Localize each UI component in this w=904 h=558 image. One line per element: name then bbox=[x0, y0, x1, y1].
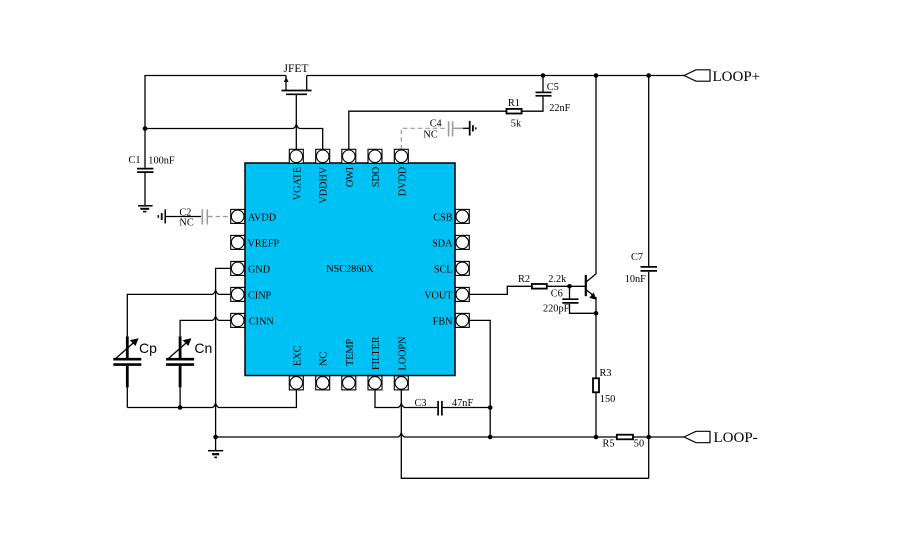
svg-text:R3: R3 bbox=[600, 368, 612, 379]
svg-text:CSB: CSB bbox=[433, 213, 452, 224]
svg-text:NC: NC bbox=[319, 352, 330, 366]
svg-text:C7: C7 bbox=[631, 252, 643, 263]
svg-text:C3: C3 bbox=[415, 398, 427, 409]
svg-text:SCL: SCL bbox=[434, 264, 453, 275]
svg-text:NC: NC bbox=[179, 218, 193, 229]
svg-text:NSC2860X: NSC2860X bbox=[326, 264, 374, 275]
svg-text:OWI: OWI bbox=[345, 166, 356, 187]
svg-text:C4: C4 bbox=[430, 119, 442, 130]
svg-text:5k: 5k bbox=[511, 119, 522, 130]
svg-text:SDO: SDO bbox=[371, 167, 382, 187]
svg-text:R1: R1 bbox=[508, 98, 520, 109]
svg-text:CINN: CINN bbox=[249, 316, 275, 327]
svg-text:R5: R5 bbox=[603, 438, 615, 449]
svg-text:C6: C6 bbox=[551, 289, 563, 300]
svg-text:22nF: 22nF bbox=[549, 103, 570, 114]
svg-text:JFET: JFET bbox=[284, 63, 309, 75]
svg-text:LOOPN: LOOPN bbox=[397, 336, 408, 371]
svg-text:EXC: EXC bbox=[292, 345, 303, 366]
svg-text:GND: GND bbox=[248, 264, 270, 275]
svg-text:220pF: 220pF bbox=[543, 304, 570, 315]
svg-text:CINP: CINP bbox=[248, 290, 272, 301]
svg-text:10nF: 10nF bbox=[625, 274, 646, 285]
svg-text:C1: C1 bbox=[129, 155, 141, 166]
svg-text:R2: R2 bbox=[518, 274, 530, 285]
svg-text:Cn: Cn bbox=[194, 340, 212, 356]
svg-text:AVDD: AVDD bbox=[248, 213, 276, 224]
svg-text:50: 50 bbox=[634, 438, 644, 449]
svg-text:NC: NC bbox=[423, 130, 437, 141]
svg-text:FBN: FBN bbox=[433, 316, 453, 327]
svg-text:150: 150 bbox=[600, 394, 615, 405]
svg-text:C5: C5 bbox=[547, 82, 559, 93]
svg-text:FILTER: FILTER bbox=[371, 336, 382, 370]
svg-text:TEMP: TEMP bbox=[345, 338, 356, 366]
svg-text:Cp: Cp bbox=[139, 340, 157, 356]
svg-text:LOOP+: LOOP+ bbox=[713, 69, 761, 85]
svg-text:VDDHV: VDDHV bbox=[319, 166, 330, 203]
svg-text:100nF: 100nF bbox=[148, 155, 175, 166]
svg-text:2.2k: 2.2k bbox=[548, 274, 567, 285]
svg-text:DVDD: DVDD bbox=[397, 167, 408, 196]
svg-text:VOUT: VOUT bbox=[424, 290, 453, 301]
svg-text:47nF: 47nF bbox=[452, 398, 473, 409]
svg-text:VREFP: VREFP bbox=[248, 238, 280, 249]
svg-text:LOOP-: LOOP- bbox=[714, 430, 758, 446]
svg-text:SDA: SDA bbox=[432, 238, 453, 249]
svg-text:VGATE: VGATE bbox=[292, 167, 303, 200]
